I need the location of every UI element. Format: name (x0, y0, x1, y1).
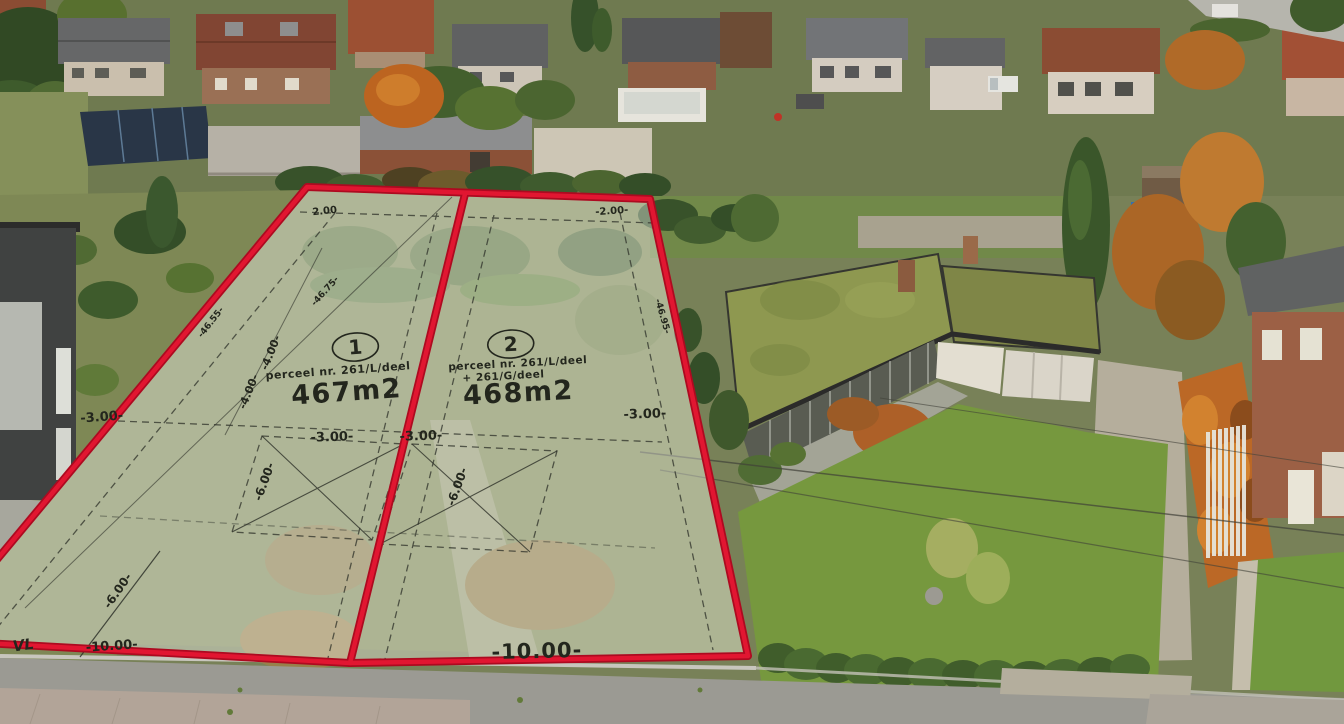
plot-1-number: 1 (348, 335, 364, 360)
plot-2-number: 2 (503, 332, 518, 357)
plot-2-area-label: 468m2 (462, 375, 574, 412)
plot-overlay: 1 perceel nr. 261/L/deel 467m2 2 perceel… (0, 0, 1344, 724)
dim-right-strip: -3.00- (623, 406, 666, 422)
dim-plot2-front: -3.00- (399, 428, 442, 444)
dim-frontage-main: -10.00- (491, 638, 582, 664)
corner-mark-vl: VL (12, 635, 35, 656)
dim-top-right: -2.00- (595, 205, 629, 218)
aerial-photo: 1 perceel nr. 261/L/deel 467m2 2 perceel… (0, 0, 1344, 724)
dim-plot1-front: -3.00- (310, 429, 353, 445)
dim-left-strip: -3.00- (80, 409, 124, 427)
